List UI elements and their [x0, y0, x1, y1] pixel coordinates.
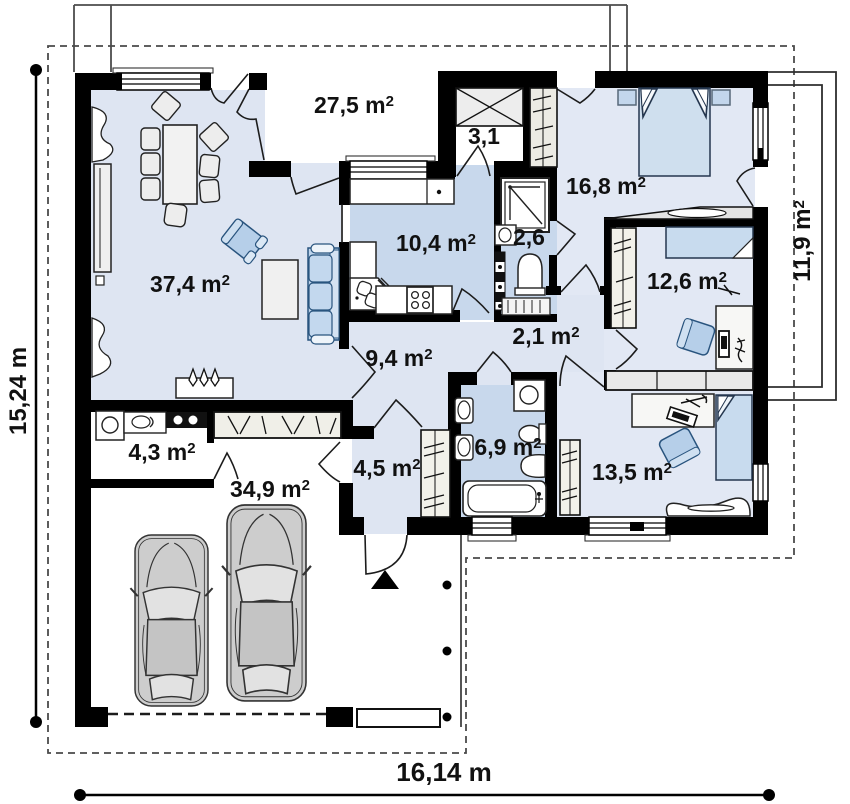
- svg-text:27,5 m2: 27,5 m2: [314, 92, 394, 118]
- svg-text:15,24 m: 15,24 m: [5, 347, 32, 435]
- svg-text:13,5 m2: 13,5 m2: [592, 459, 672, 485]
- svg-text:37,4 m2: 37,4 m2: [150, 271, 230, 297]
- svg-text:12,6 m2: 12,6 m2: [647, 268, 727, 294]
- svg-text:3,1: 3,1: [468, 123, 500, 149]
- svg-text:4,3 m2: 4,3 m2: [128, 439, 195, 465]
- svg-text:16,8 m2: 16,8 m2: [566, 173, 646, 199]
- svg-text:16,14 m: 16,14 m: [396, 757, 491, 787]
- svg-text:10,4 m2: 10,4 m2: [396, 230, 476, 256]
- svg-text:11,9 m2: 11,9 m2: [789, 200, 816, 282]
- svg-text:6,9 m2: 6,9 m2: [474, 434, 541, 460]
- svg-text:4,5 m2: 4,5 m2: [353, 455, 420, 481]
- svg-text:9,4 m2: 9,4 m2: [365, 345, 432, 371]
- svg-text:2,1 m2: 2,1 m2: [512, 323, 579, 349]
- svg-text:34,9 m2: 34,9 m2: [230, 476, 310, 502]
- svg-text:2,6: 2,6: [513, 224, 545, 250]
